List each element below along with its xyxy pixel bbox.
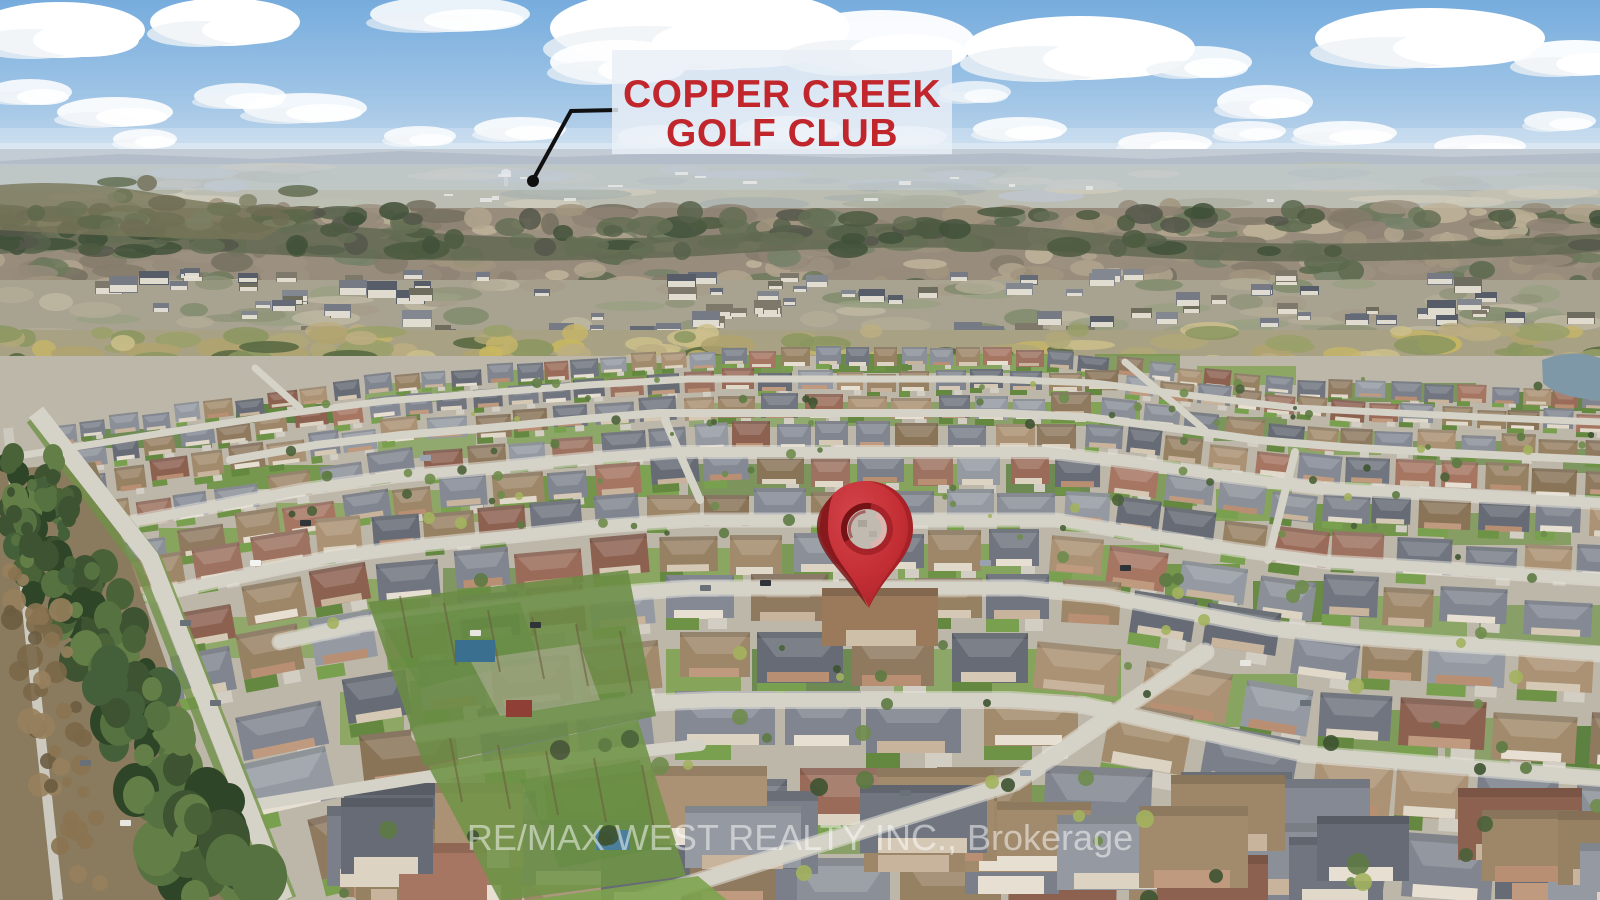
svg-text:RE/MAX WEST REALTY INC., Broke: RE/MAX WEST REALTY INC., Brokerage — [467, 817, 1133, 858]
svg-text:COPPER CREEK: COPPER CREEK — [623, 73, 941, 116]
svg-text:GOLF CLUB: GOLF CLUB — [666, 112, 898, 155]
